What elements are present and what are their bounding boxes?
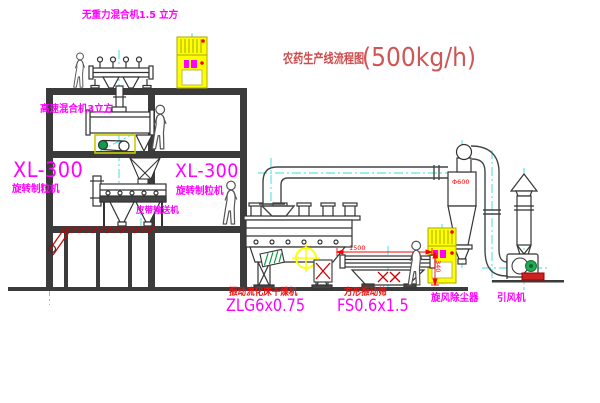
granulator-left-model: XL-300 [13,160,83,181]
discharge-funnel [130,158,160,184]
screen-length-dimension: 1500 [349,245,366,252]
dryer-model-label: ZLG6x0.75 [226,298,305,315]
indicator-light [450,230,454,234]
dryer-discharge-chute [314,260,332,282]
cabinet-door [182,70,202,85]
control-cabinet-top [177,37,207,88]
cyclone-diameter-dimension: Φ600 [452,179,470,186]
granulator-right-model: XL-300 [175,162,239,181]
indicator-light [201,39,205,43]
fan-label: 引风机 [497,294,526,304]
screen-height-dimension: 340 [435,260,442,272]
fan-base [522,273,544,280]
cabinet-marking [191,60,197,68]
belt-conveyor-label: 皮带输送机 [136,207,179,216]
screen-model-label: FS0.6x1.5 [337,298,409,315]
people [74,53,422,285]
motor [99,141,108,150]
fan-suction-duct [471,146,507,279]
cyclone-label: 旋风除尘器 [431,294,479,304]
cabinet-marking [440,250,446,258]
person-figure-1 [74,53,85,87]
indicator-light [450,251,454,255]
cabinet-marking [184,60,189,68]
flow-diagram-canvas: 无重力混合机1.5 立方 农药生产线流程图 (500kg/h) 高速混合机3立方… [0,0,600,403]
gravity-mixer-label: 无重力混合机1.5 立方 [82,11,178,21]
induced-draft-fan [507,254,544,280]
diagram-title: 农药生产线流程图 [283,53,364,66]
person-figure-3 [223,181,237,224]
fluid-bed-dryer [244,203,360,289]
high-speed-mixer-label: 高速混合机3立方 [40,105,113,115]
granulator-right-name: 旋转制粒机 [176,187,224,197]
diagram-title-capacity: (500kg/h) [362,45,476,71]
granulator-left-name: 旋转制粒机 [12,185,60,195]
indicator-light [200,61,204,65]
